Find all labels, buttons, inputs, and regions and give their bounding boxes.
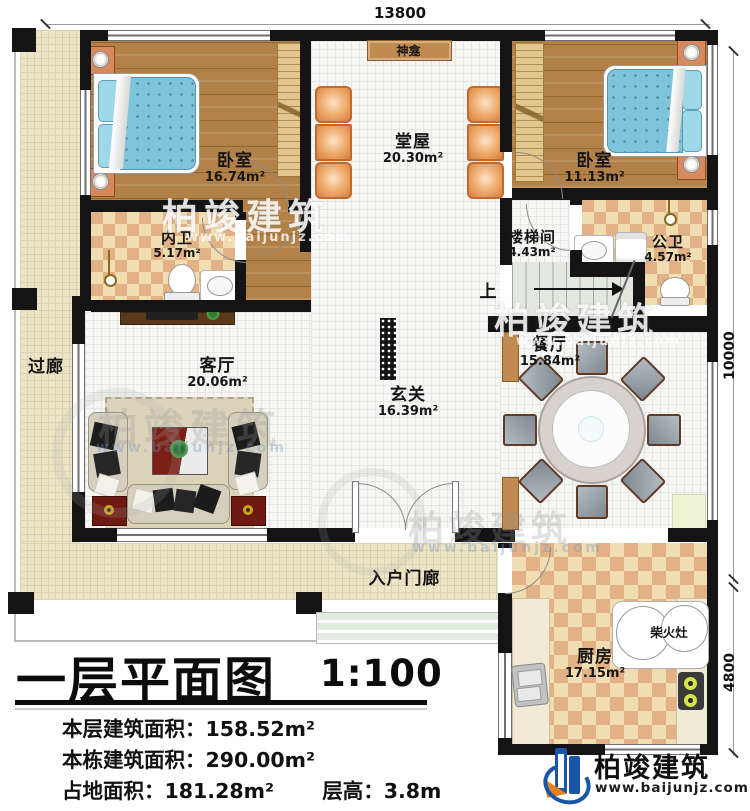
shrine-label: 神龛 (367, 42, 450, 59)
window (545, 30, 675, 41)
wall-hatched-column (380, 318, 396, 380)
toilet-tank (660, 297, 690, 306)
column (8, 592, 34, 614)
kitchen-sink-basin (517, 669, 543, 687)
room-area: 17.15m² (555, 667, 635, 682)
hall-chair (467, 162, 504, 199)
dimension-top: 13800 (365, 4, 435, 22)
stat-value: 158.52m² (206, 717, 315, 741)
veranda-outline-left (14, 28, 16, 642)
wood-stove-label: 柴火灶 (634, 622, 704, 641)
room-label-kitchen: 厨房 17.15m² (555, 648, 635, 682)
lamp-icon (683, 156, 700, 173)
room-label-living: 客厅 20.06m² (175, 357, 260, 391)
light-pull-icon (664, 213, 677, 226)
hall-chair (315, 86, 352, 123)
dimension-right-lower: 4800 (722, 628, 738, 692)
kitchen-sink-basin (516, 686, 541, 702)
tv (146, 311, 198, 320)
sink-basin (581, 241, 607, 260)
lamp-icon (92, 51, 109, 68)
stat-line: 本栋建筑面积：290.00m² (62, 743, 315, 773)
room-area: 20.30m² (368, 152, 458, 167)
room-label-foyer: 玄关 16.39m² (368, 386, 448, 420)
cushion (174, 489, 197, 514)
entry-steps (316, 612, 500, 644)
room-name: 堂屋 (368, 133, 458, 152)
dining-chair (576, 485, 608, 519)
dining-chair (503, 414, 537, 446)
room-name: 过廊 (20, 358, 72, 377)
hall-chair (467, 86, 504, 123)
light-pull-stem (668, 200, 670, 213)
room-label-main-hall: 堂屋 20.30m² (368, 133, 458, 167)
watermark-url: www.baijunjz.com (516, 334, 681, 349)
floor-plan: 神龛 柴 (0, 0, 750, 811)
window (108, 30, 270, 41)
sink-basin (207, 276, 233, 296)
stat-value: 181.28m² (165, 779, 274, 803)
company-website: www.baijunjz.com (595, 780, 749, 796)
company-logo-icon (545, 746, 589, 798)
room-label-corridor: 过廊 (20, 358, 72, 377)
plan-scale: 1:100 (320, 652, 443, 695)
room-label-bedroom-right: 卧室 11.13m² (552, 152, 637, 186)
room-label-bedroom-left: 卧室 16.74m² (185, 152, 285, 186)
stat-line: 本层建筑面积：158.52m² (62, 712, 315, 742)
watermark-url: www.baijunjz.com (96, 440, 287, 456)
room-area: 11.13m² (552, 171, 637, 186)
lamp-icon (92, 173, 109, 190)
lamp-icon (683, 44, 700, 61)
column (12, 28, 36, 52)
wall (500, 30, 512, 152)
dining-table-center (578, 416, 604, 442)
hall-side-table (315, 124, 352, 161)
pillow (682, 110, 702, 152)
stairs-arrow-line (534, 288, 616, 290)
column (12, 288, 37, 310)
room-area: 20.06m² (175, 376, 260, 391)
stat-line: 占地面积：181.28m² 层高：3.8m (62, 774, 441, 804)
room-name: 客厅 (175, 357, 260, 376)
window (80, 90, 91, 195)
stat-label: 层高： (322, 779, 384, 803)
drain-stem (108, 250, 110, 274)
title-underline-light (15, 708, 427, 710)
column (296, 592, 322, 614)
doormat (672, 494, 706, 530)
dining-chair (647, 414, 681, 446)
room-name: 楼梯间 (492, 229, 572, 246)
window (117, 528, 267, 542)
room-label-stairwell: 楼梯间 4.43m² (492, 229, 572, 259)
wall (91, 300, 311, 312)
burner-icon (684, 694, 697, 707)
watermark-url: www.baijunjz.com (412, 540, 603, 556)
watermark-url: www.baijunjz.com (186, 230, 351, 245)
veranda-floor-left (20, 30, 80, 600)
room-name: 卧室 (185, 152, 285, 171)
room-area: 15.84m² (510, 355, 590, 370)
dimension-right-upper: 10000 (722, 300, 738, 380)
room-name: 厨房 (555, 648, 635, 667)
rosette-icon (243, 505, 253, 515)
dimension-line (45, 24, 710, 25)
window (707, 362, 718, 520)
logo-ring (538, 758, 596, 811)
room-area: 16.74m² (185, 171, 285, 186)
room-label-public-bath: 公卫 4.57m² (633, 234, 703, 264)
floor-drain-icon (104, 274, 117, 287)
window (498, 653, 512, 738)
stat-value: 3.8m (384, 779, 442, 803)
room-area: 4.57m² (633, 251, 703, 264)
burner-icon (684, 677, 697, 690)
room-area: 4.43m² (492, 246, 572, 259)
stat-label: 本层建筑面积： (62, 717, 206, 741)
stat-value: 290.00m² (206, 748, 315, 772)
room-name: 玄关 (368, 386, 448, 405)
wall (300, 30, 311, 212)
window (707, 45, 718, 155)
room-name: 公卫 (633, 234, 703, 251)
room-area: 5.17m² (142, 247, 212, 260)
stat-label: 本栋建筑面积： (62, 748, 206, 772)
room-area: 16.39m² (368, 405, 448, 420)
nightstand (677, 39, 706, 68)
room-name: 卧室 (552, 152, 637, 171)
wall (570, 200, 582, 205)
window (707, 210, 718, 245)
title-underline (15, 700, 427, 705)
pillow (682, 70, 702, 110)
hall-side-table (467, 124, 504, 161)
stat-label: 占地面积： (62, 779, 165, 803)
wall (498, 593, 512, 653)
